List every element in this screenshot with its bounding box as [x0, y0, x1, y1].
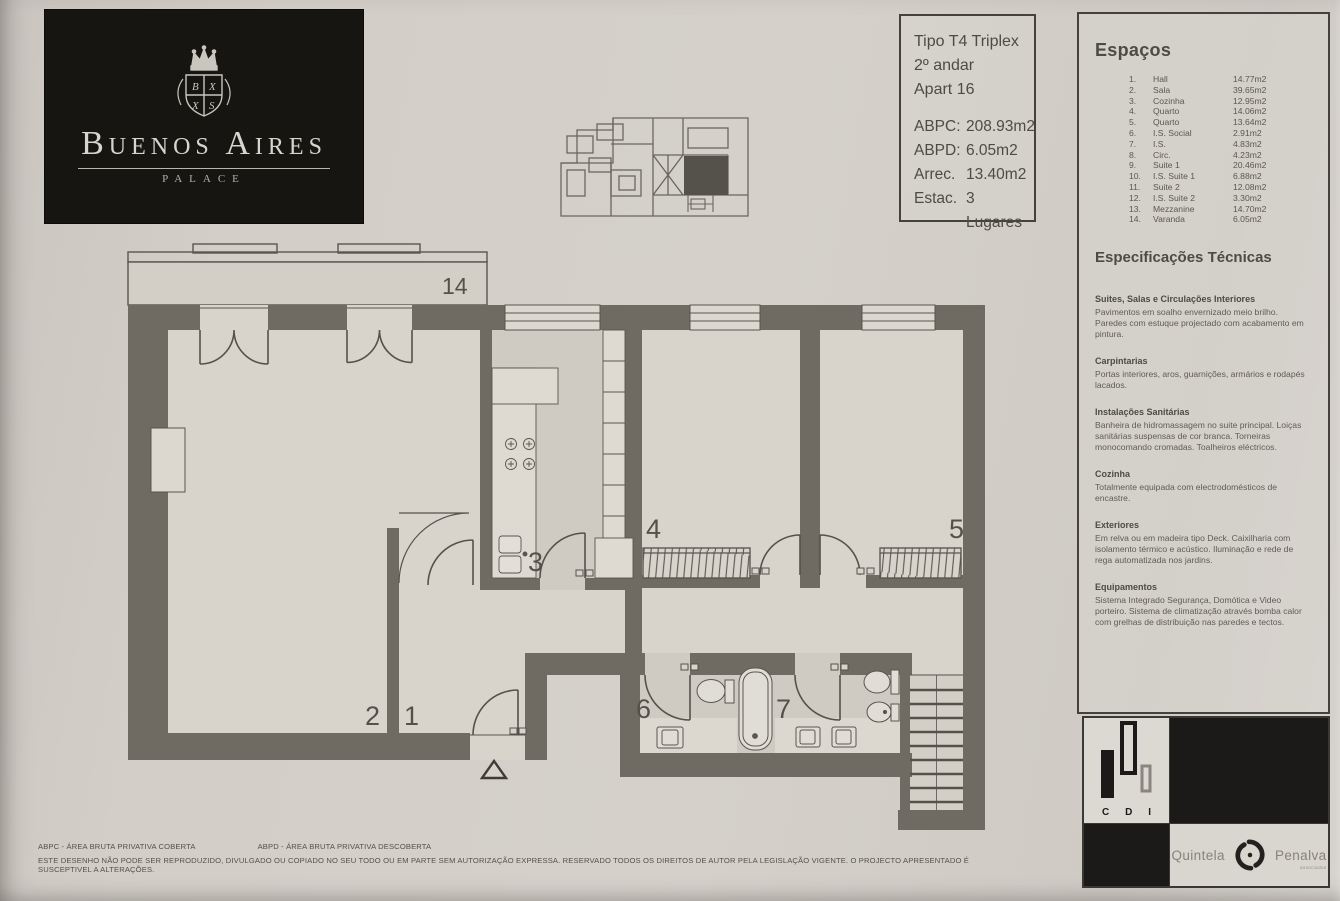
space-area: 20.46m2: [1233, 160, 1312, 171]
space-area: 3.30m2: [1233, 193, 1312, 204]
space-row: 10.I.S. Suite 16.88m2: [1129, 171, 1312, 182]
area-value: 208.93m2: [966, 115, 1035, 139]
space-area: 14.06m2: [1233, 106, 1312, 117]
space-row: 1.Hall14.77m2: [1129, 74, 1312, 85]
agency-swirl-icon: [1234, 838, 1266, 872]
space-name: I.S.: [1153, 139, 1233, 150]
logo-divider: [78, 168, 330, 169]
floor-plan: 1 2 3 4 5 6 7 14: [115, 238, 1020, 838]
space-name: Suite 1: [1153, 160, 1233, 171]
room-label-sala: 2: [365, 701, 380, 731]
space-num: 3.: [1129, 96, 1153, 107]
balcony-varanda: [128, 244, 487, 305]
space-num: 11.: [1129, 182, 1153, 193]
space-name: I.S. Suite 2: [1153, 193, 1233, 204]
space-num: 10.: [1129, 171, 1153, 182]
agency-name-right-text: Penalva: [1275, 848, 1327, 863]
space-area: 12.95m2: [1233, 96, 1312, 107]
space-area: 12.08m2: [1233, 182, 1312, 193]
space-row: 11.Suite 212.08m2: [1129, 182, 1312, 193]
area-label: Arrec.: [914, 163, 966, 187]
space-area: 13.64m2: [1233, 117, 1312, 128]
space-num: 9.: [1129, 160, 1153, 171]
room-label-is-social: 6: [636, 694, 651, 724]
space-num: 1.: [1129, 74, 1153, 85]
space-num: 4.: [1129, 106, 1153, 117]
quintela-penalva-logo: Quintela Penalva associados: [1170, 824, 1328, 886]
area-row: Arrec.13.40m2: [914, 163, 1034, 187]
brand-black-panel: [1170, 718, 1328, 824]
footer-abbreviations: ABPC - ÁREA BRUTA PRIVATIVA COBERTA ABPD…: [38, 842, 1018, 851]
room-label-hall: 1: [404, 701, 419, 731]
footer: ABPC - ÁREA BRUTA PRIVATIVA COBERTA ABPD…: [38, 842, 1018, 874]
space-name: Hall: [1153, 74, 1233, 85]
agency-name-left: Quintela: [1171, 848, 1224, 863]
buenos-aires-logo: BX XS Buenos Aires PALACE: [45, 10, 363, 223]
space-row: 5.Quarto13.64m2: [1129, 117, 1312, 128]
footer-abbr-abpc: ABPC - ÁREA BRUTA PRIVATIVA COBERTA: [38, 842, 196, 851]
space-row: 9.Suite 120.46m2: [1129, 160, 1312, 171]
space-name: Sala: [1153, 85, 1233, 96]
logo-subtitle: PALACE: [162, 173, 246, 185]
space-row: 12.I.S. Suite 23.30m2: [1129, 193, 1312, 204]
room-label-quarto5: 5: [949, 514, 964, 544]
logo-title: Buenos Aires: [81, 127, 327, 161]
area-row: ABPC:208.93m2: [914, 115, 1034, 139]
area-value: 6.05m2: [966, 139, 1034, 163]
footer-abbr-abpd: ABPD - ÁREA BRUTA PRIVATIVA DESCOBERTA: [258, 842, 432, 851]
cdi-mark-icon: [1084, 718, 1168, 804]
space-area: 6.05m2: [1233, 214, 1312, 225]
spec-heading: Instalações Sanitárias: [1095, 407, 1312, 417]
area-value: 13.40m2: [966, 163, 1034, 187]
spec-body: Portas interiores, aros, guarnições, arm…: [1095, 369, 1312, 391]
building-key-plan: [553, 100, 768, 230]
spec-heading: Carpintarias: [1095, 356, 1312, 366]
area-row: Estac.3 Lugares: [914, 187, 1034, 235]
cdi-letter-c: C: [1102, 807, 1109, 818]
spec-body: Banheira de hidromassagem no suite princ…: [1095, 420, 1312, 453]
svg-text:B: B: [192, 81, 199, 93]
space-area: 14.77m2: [1233, 74, 1312, 85]
space-num: 8.: [1129, 150, 1153, 161]
space-num: 7.: [1129, 139, 1153, 150]
space-name: Circ.: [1153, 150, 1233, 161]
apartment-floor: 2º andar: [914, 54, 1034, 78]
space-area: 2.91m2: [1233, 128, 1312, 139]
spec-section: Instalações SanitáriasBanheira de hidrom…: [1095, 407, 1312, 453]
space-name: I.S. Social: [1153, 128, 1233, 139]
spec-body: Pavimentos em soalho envernizado meio br…: [1095, 307, 1312, 340]
spec-section: CozinhaTotalmente equipada com electrodo…: [1095, 469, 1312, 504]
space-area: 39.65m2: [1233, 85, 1312, 96]
space-name: Quarto: [1153, 106, 1233, 117]
cdi-letter-d: D: [1125, 807, 1132, 818]
crest-icon: BX XS: [172, 45, 236, 121]
space-num: 6.: [1129, 128, 1153, 139]
agency-name-right: Penalva associados: [1275, 848, 1327, 863]
cdi-logo: C D I: [1084, 718, 1170, 824]
space-area: 4.83m2: [1233, 139, 1312, 150]
space-name: Quarto: [1153, 117, 1233, 128]
svg-text:X: X: [191, 100, 200, 112]
space-num: 2.: [1129, 85, 1153, 96]
cdi-letter-i: I: [1148, 807, 1151, 818]
spec-heading: Cozinha: [1095, 469, 1312, 479]
spec-body: Em relva ou em madeira tipo Deck. Caixil…: [1095, 533, 1312, 566]
space-row: 13.Mezzanine14.70m2: [1129, 204, 1312, 215]
space-name: Mezzanine: [1153, 204, 1233, 215]
spec-body: Sistema Integrado Segurança, Domótica e …: [1095, 595, 1312, 628]
spec-heading: Equipamentos: [1095, 582, 1312, 592]
spec-section: Suites, Salas e Circulações InterioresPa…: [1095, 294, 1312, 340]
spec-section: ExterioresEm relva ou em madeira tipo De…: [1095, 520, 1312, 566]
area-label: ABPD:: [914, 139, 966, 163]
area-summary: ABPC:208.93m2 ABPD:6.05m2 Arrec.13.40m2 …: [914, 115, 1034, 235]
space-name: Suite 2: [1153, 182, 1233, 193]
space-name: Cozinha: [1153, 96, 1233, 107]
spec-section: EquipamentosSistema Integrado Segurança,…: [1095, 582, 1312, 628]
space-area: 14.70m2: [1233, 204, 1312, 215]
room-label-is: 7: [776, 694, 791, 724]
space-num: 5.: [1129, 117, 1153, 128]
spec-heading: Exteriores: [1095, 520, 1312, 530]
space-area: 6.88m2: [1233, 171, 1312, 182]
apartment-info-box: Tipo T4 Triplex 2º andar Apart 16 ABPC:2…: [899, 14, 1036, 222]
apartment-type: Tipo T4 Triplex: [914, 30, 1034, 54]
specifications-sidebar: Espaços 1.Hall14.77m2 2.Sala39.65m2 3.Co…: [1077, 12, 1330, 714]
space-num: 14.: [1129, 214, 1153, 225]
spaces-title: Espaços: [1095, 40, 1312, 61]
apartment-number: Apart 16: [914, 78, 1034, 102]
room-label-varanda: 14: [442, 273, 468, 299]
space-row: 4.Quarto14.06m2: [1129, 106, 1312, 117]
space-row: 2.Sala39.65m2: [1129, 85, 1312, 96]
area-label: ABPC:: [914, 115, 966, 139]
footer-disclaimer: ESTE DESENHO NÃO PODE SER REPRODUZIDO, D…: [38, 856, 1018, 874]
branding-box: C D I Quintela Penalva associados: [1082, 716, 1330, 888]
entrance-triangle: [482, 761, 506, 778]
area-row: ABPD:6.05m2: [914, 139, 1034, 163]
room-label-quarto4: 4: [646, 514, 661, 544]
spaces-list: 1.Hall14.77m2 2.Sala39.65m2 3.Cozinha12.…: [1129, 74, 1312, 225]
spec-section: CarpintariasPortas interiores, aros, gua…: [1095, 356, 1312, 391]
space-row: 6.I.S. Social2.91m2: [1129, 128, 1312, 139]
space-row: 3.Cozinha12.95m2: [1129, 96, 1312, 107]
area-value: 3 Lugares: [966, 187, 1034, 235]
spec-heading: Suites, Salas e Circulações Interiores: [1095, 294, 1312, 304]
space-name: I.S. Suite 1: [1153, 171, 1233, 182]
highlighted-unit: [684, 156, 728, 195]
scanned-floorplan-sheet: BX XS Buenos Aires PALACE Tipo T4 Triple…: [0, 0, 1340, 901]
cdi-letters: C D I: [1084, 807, 1169, 818]
space-num: 13.: [1129, 204, 1153, 215]
space-name: Varanda: [1153, 214, 1233, 225]
svg-text:X: X: [208, 81, 217, 93]
space-row: 7.I.S.4.83m2: [1129, 139, 1312, 150]
agency-subtitle: associados: [1300, 865, 1327, 870]
room-label-cozinha: 3: [528, 547, 543, 577]
brand-black-panel: [1084, 824, 1170, 886]
area-label: Estac.: [914, 187, 966, 235]
space-row: 8.Circ.4.23m2: [1129, 150, 1312, 161]
specs-title: Especificações Técnicas: [1095, 249, 1312, 266]
space-row: 14.Varanda6.05m2: [1129, 214, 1312, 225]
space-num: 12.: [1129, 193, 1153, 204]
spec-body: Totalmente equipada com electrodoméstico…: [1095, 482, 1312, 504]
space-area: 4.23m2: [1233, 150, 1312, 161]
svg-text:S: S: [209, 100, 215, 112]
